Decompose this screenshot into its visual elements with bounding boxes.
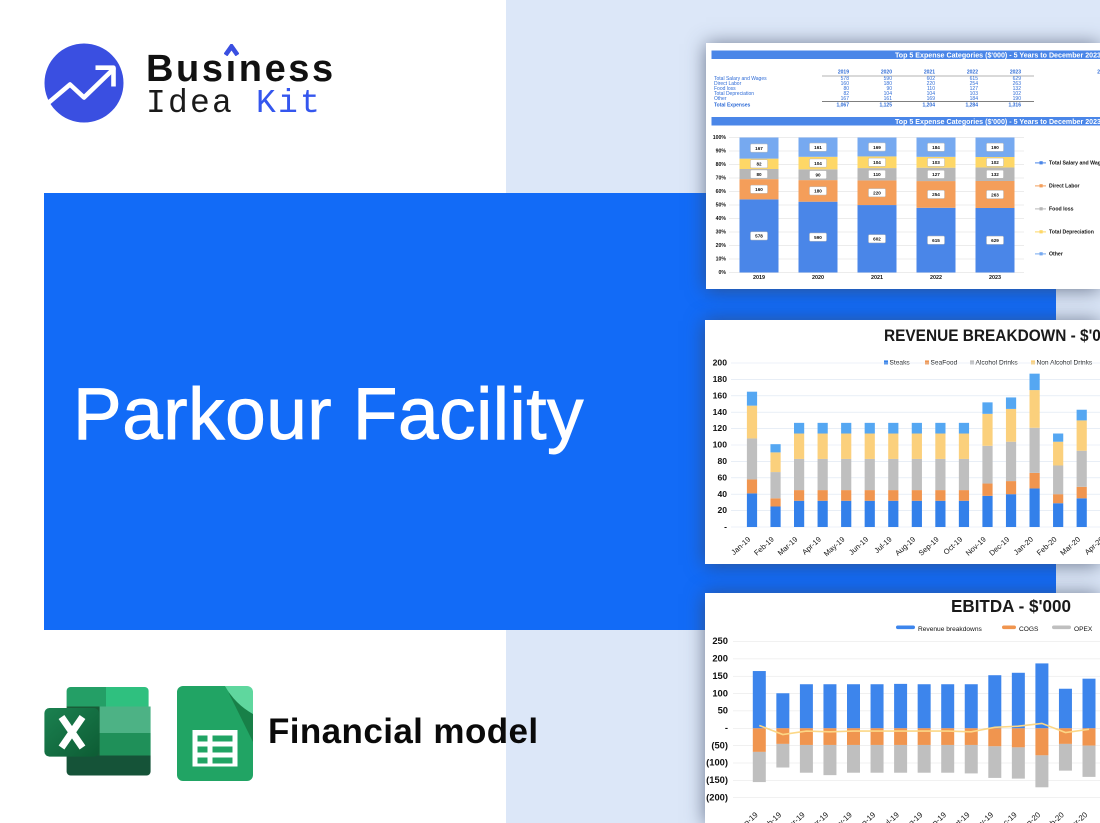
svg-text:Sep-19: Sep-19 (917, 535, 941, 558)
svg-text:127: 127 (932, 172, 940, 177)
svg-text:2020: 2020 (812, 275, 824, 281)
svg-text:Jul-19: Jul-19 (879, 810, 901, 823)
svg-text:102: 102 (991, 160, 999, 165)
svg-text:167: 167 (755, 146, 763, 151)
svg-text:Jan-20: Jan-20 (1018, 810, 1042, 823)
svg-text:2023: 2023 (989, 275, 1001, 281)
svg-text:REVENUE BREAKDOWN - $'000: REVENUE BREAKDOWN - $'000 (884, 326, 1100, 345)
svg-text:110: 110 (873, 172, 881, 177)
svg-text:COGS: COGS (1019, 626, 1039, 633)
svg-text:May-19: May-19 (822, 535, 847, 558)
svg-text:200: 200 (713, 358, 728, 368)
svg-text:0%: 0% (719, 270, 727, 276)
svg-text:Mar-20: Mar-20 (1058, 535, 1082, 558)
svg-text:1,284: 1,284 (965, 103, 978, 109)
svg-text:(50): (50) (711, 739, 728, 750)
svg-text:50%: 50% (716, 203, 727, 209)
svg-text:Apr-20: Apr-20 (1083, 535, 1100, 557)
svg-text:May-19: May-19 (828, 810, 853, 823)
svg-text:(150): (150) (706, 774, 728, 785)
svg-text:100%: 100% (713, 135, 727, 141)
svg-text:Jul-19: Jul-19 (872, 535, 893, 555)
svg-text:60%: 60% (716, 189, 727, 195)
svg-text:80: 80 (717, 456, 727, 466)
svg-text:1,204: 1,204 (922, 103, 935, 109)
svg-text:100: 100 (712, 687, 728, 698)
svg-text:Other: Other (714, 96, 727, 102)
svg-text:100: 100 (713, 440, 728, 450)
svg-text:(100): (100) (706, 757, 728, 768)
svg-text:Dec-19: Dec-19 (994, 810, 1019, 823)
svg-text:Top 5 Expense Categories ($'00: Top 5 Expense Categories ($'000) - 5 Yea… (895, 118, 1100, 126)
svg-text:2021: 2021 (924, 70, 935, 76)
svg-text:120: 120 (713, 423, 728, 433)
svg-text:180: 180 (713, 374, 728, 384)
svg-text:590: 590 (814, 235, 822, 240)
svg-text:104: 104 (814, 161, 822, 166)
svg-text:578: 578 (755, 234, 763, 239)
svg-text:Nov-19: Nov-19 (970, 810, 995, 823)
svg-text:615: 615 (932, 238, 940, 243)
svg-text:160: 160 (755, 187, 763, 192)
svg-text:-: - (724, 522, 727, 532)
svg-text:20%: 20% (716, 243, 727, 249)
svg-text:250: 250 (712, 635, 728, 646)
svg-text:Total Depreciation: Total Depreciation (1049, 230, 1094, 236)
svg-text:140: 140 (713, 407, 728, 417)
svg-text:-: - (725, 722, 728, 733)
svg-text:40%: 40% (716, 216, 727, 222)
svg-text:2022: 2022 (967, 70, 978, 76)
svg-text:104: 104 (873, 160, 881, 165)
svg-text:90: 90 (815, 173, 821, 178)
svg-text:629: 629 (991, 238, 999, 243)
svg-text:169: 169 (873, 145, 881, 150)
svg-text:OPEX: OPEX (1074, 626, 1093, 633)
svg-text:Feb-20: Feb-20 (1041, 810, 1066, 823)
svg-text:Nov-19: Nov-19 (964, 535, 988, 558)
svg-text:Feb-19: Feb-19 (759, 810, 783, 823)
svg-text:161: 161 (814, 145, 822, 150)
svg-text:190: 190 (991, 145, 999, 150)
svg-text:Apr-19: Apr-19 (807, 810, 830, 823)
svg-text:60: 60 (717, 472, 727, 482)
svg-text:1,067: 1,067 (836, 103, 849, 109)
svg-text:2023: 2023 (1010, 70, 1021, 76)
svg-text:Oct-19: Oct-19 (948, 810, 971, 823)
svg-text:Direct Labor: Direct Labor (1049, 184, 1080, 190)
svg-text:70%: 70% (716, 176, 727, 182)
svg-text:90%: 90% (716, 149, 727, 155)
svg-text:Food loss: Food loss (1049, 207, 1074, 213)
svg-text:Other: Other (1049, 252, 1063, 258)
svg-text:184: 184 (932, 145, 940, 150)
svg-text:Top 5 Expense Categories ($'00: Top 5 Expense Categories ($'000) - 5 Yea… (895, 52, 1100, 60)
svg-text:Jan-19: Jan-19 (729, 535, 752, 557)
svg-text:200: 200 (712, 653, 728, 664)
svg-text:Mar-20: Mar-20 (1065, 810, 1090, 823)
svg-text:EBITDA - $'000: EBITDA - $'000 (951, 596, 1071, 616)
svg-text:180: 180 (814, 189, 822, 194)
svg-text:(200): (200) (706, 791, 728, 802)
svg-text:160: 160 (713, 390, 728, 400)
svg-text:82: 82 (756, 162, 762, 167)
svg-text:Oct-19: Oct-19 (942, 535, 965, 557)
svg-text:2019: 2019 (838, 70, 849, 76)
svg-text:Aug-19: Aug-19 (900, 810, 925, 823)
svg-text:254: 254 (932, 192, 940, 197)
svg-text:Total Expenses: Total Expenses (714, 103, 751, 109)
svg-text:Mar-19: Mar-19 (782, 810, 806, 823)
svg-text:2020: 2020 (881, 70, 892, 76)
svg-text:10%: 10% (716, 257, 727, 263)
svg-text:40: 40 (717, 489, 727, 499)
svg-text:602: 602 (873, 237, 881, 242)
svg-text:Total Salary and Wag: Total Salary and Wag (1049, 161, 1100, 167)
svg-text:150: 150 (712, 670, 728, 681)
svg-text:132: 132 (991, 172, 999, 177)
svg-text:Jun-19: Jun-19 (854, 810, 878, 823)
svg-text:1,125: 1,125 (879, 103, 892, 109)
svg-text:2022: 2022 (930, 275, 942, 281)
svg-text:220: 220 (873, 191, 881, 196)
svg-text:103: 103 (932, 160, 940, 165)
svg-text:2019: 2019 (753, 275, 765, 281)
svg-text:Feb-20: Feb-20 (1035, 535, 1059, 558)
svg-text:Sep-19: Sep-19 (923, 810, 948, 823)
svg-text:30%: 30% (716, 230, 727, 236)
svg-text:263: 263 (991, 192, 999, 197)
svg-text:Apr-19: Apr-19 (800, 535, 823, 557)
svg-text:50: 50 (718, 705, 728, 716)
svg-text:80%: 80% (716, 162, 727, 168)
svg-text:Mar-19: Mar-19 (776, 535, 800, 558)
svg-text:20: 20 (717, 505, 727, 515)
svg-text:Jan-20: Jan-20 (1012, 535, 1035, 557)
svg-text:Dec-19: Dec-19 (987, 535, 1011, 558)
svg-text:80: 80 (756, 172, 762, 177)
svg-text:Revenue breakdowns: Revenue breakdowns (918, 626, 982, 633)
svg-text:1,316: 1,316 (1008, 103, 1021, 109)
svg-text:Feb-19: Feb-19 (752, 535, 776, 558)
svg-text:Jun-19: Jun-19 (847, 535, 870, 557)
svg-text:2021: 2021 (871, 275, 883, 281)
svg-text:Aug-19: Aug-19 (893, 535, 917, 558)
svg-text:Jan-19: Jan-19 (736, 810, 760, 823)
